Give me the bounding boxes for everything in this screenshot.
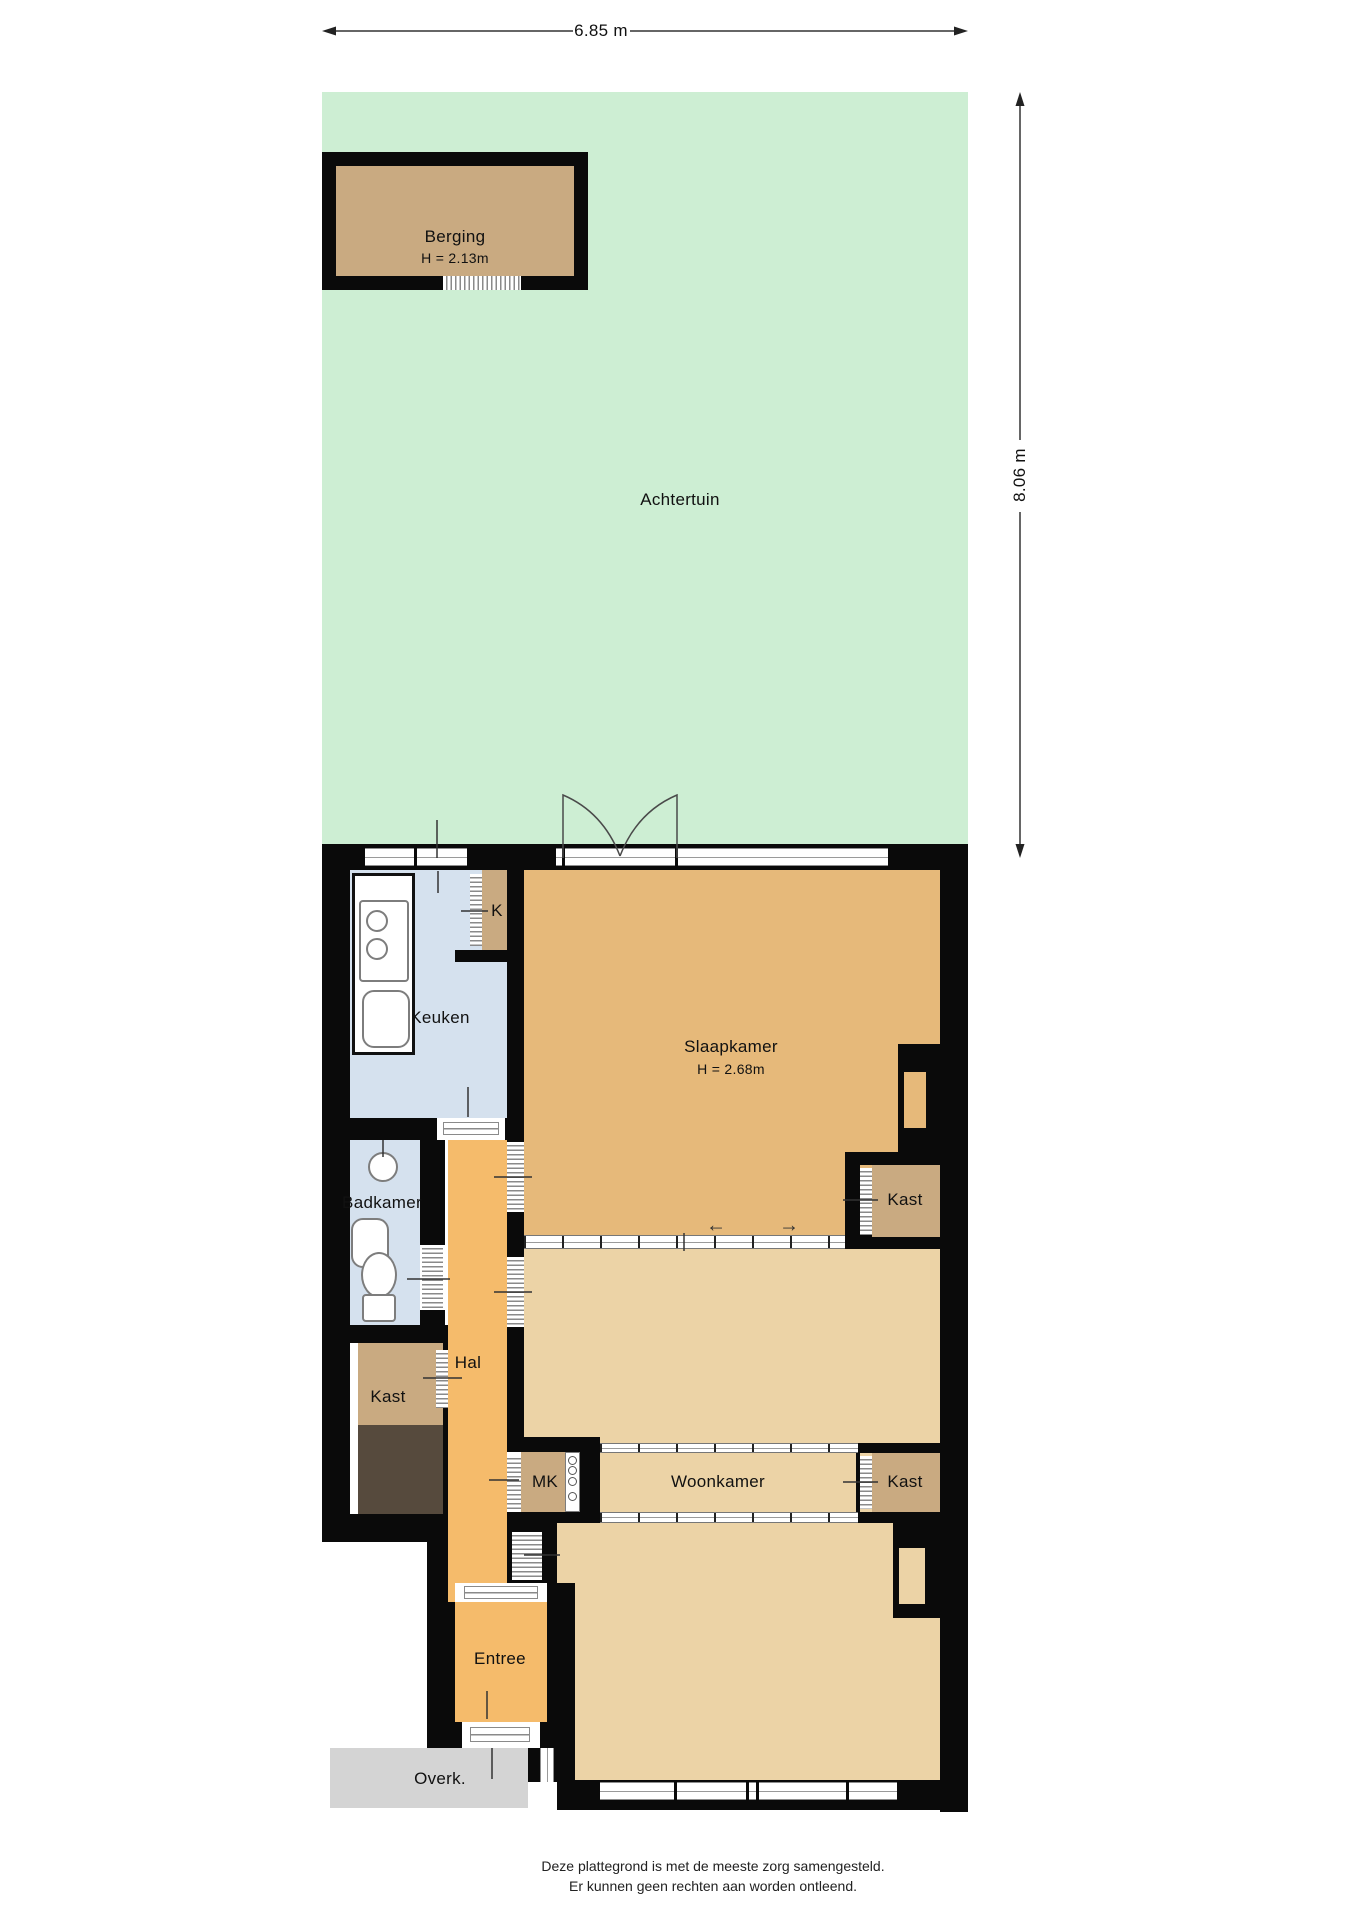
shower-icon (368, 1152, 398, 1182)
room-kast-left-floor (358, 1343, 443, 1425)
dimension-width-label: 6.85 m (568, 21, 634, 41)
badkamer-label: Badkamer (342, 1193, 422, 1213)
overkapping-label: Overk. (414, 1769, 466, 1789)
dimension-height-label: 8.06 m (1008, 444, 1032, 506)
kast-left-label: Kast (370, 1387, 405, 1407)
front-window-mullion (846, 1782, 849, 1800)
front-sidelight-window (540, 1748, 554, 1782)
entree-label: Entree (474, 1649, 526, 1669)
garden-door-jamb-left (562, 848, 565, 866)
bedroom-window (556, 848, 888, 866)
wall-strip (547, 1523, 557, 1583)
k-closet-bottom-wall (455, 950, 507, 962)
wall-band-top-right (858, 1443, 940, 1453)
stove-burner-icon (366, 910, 388, 932)
hal-entree-door-leaf (464, 1586, 538, 1599)
badkamer-door (422, 1245, 443, 1310)
woonkamer-sliding-door-bottom (600, 1512, 858, 1523)
front-window-mullion (746, 1782, 749, 1800)
footer-disclaimer-line1: Deze plattegrond is met de meeste zorg s… (541, 1858, 884, 1874)
wall-badkamer-right (420, 1140, 445, 1245)
front-window-mullion (756, 1782, 759, 1800)
kast-tr-door (860, 1168, 872, 1235)
front-door-leaf (470, 1727, 530, 1742)
woonkamer-sliding-door-top (600, 1443, 858, 1453)
front-door-jamb (455, 1722, 462, 1748)
chimney-niche-bedroom (904, 1072, 926, 1128)
wall-keuken-bottom (322, 1118, 437, 1140)
sidelight-jamb (554, 1748, 575, 1782)
kast-tr-top-wall (845, 1152, 940, 1165)
floor-plan-canvas: Achtertuin Berging H = 2.13m K Keuken Sl… (0, 0, 1358, 1920)
sliding-door-arrow-left: ← (706, 1215, 726, 1238)
chimney-niche-living (899, 1548, 925, 1604)
kitchen-window-mullion (414, 848, 417, 866)
stove-burner-icon (366, 938, 388, 960)
kast-tr-label: Kast (887, 1190, 922, 1210)
kast-br-label: Kast (887, 1472, 922, 1492)
front-door-jamb (540, 1722, 547, 1748)
toilet-bowl-icon (361, 1252, 397, 1298)
hal-slaapkamer-door (507, 1142, 524, 1212)
kast-br-door (860, 1456, 872, 1509)
front-door (462, 1722, 540, 1748)
hal-entree-door (455, 1583, 547, 1602)
dark-storage-floor (358, 1425, 443, 1514)
garden-label: Achtertuin (640, 490, 720, 510)
wall-badkamer-right-lower (420, 1310, 445, 1325)
k-closet-label: K (491, 901, 503, 921)
slaapkamer-label: Slaapkamer (684, 1037, 778, 1057)
hal-label: Hal (455, 1353, 481, 1373)
front-window-mullion (674, 1782, 677, 1800)
mk-label: MK (532, 1472, 558, 1492)
meter-icon (568, 1477, 577, 1486)
kitchen-sink-icon (362, 990, 410, 1048)
garden-door-jamb-right (675, 848, 678, 866)
hal-lower-room-door (512, 1532, 542, 1580)
sliding-door-arrow-right: → (779, 1215, 799, 1238)
berging-door (443, 276, 521, 290)
meter-icon (568, 1456, 577, 1465)
hal-woonkamer-door (507, 1257, 524, 1327)
keuken-hal-door-leaf (443, 1122, 499, 1135)
footer-disclaimer-line2: Er kunnen geen rechten aan worden ontlee… (569, 1878, 857, 1894)
wall-right (940, 844, 968, 1812)
mk-door (507, 1455, 521, 1509)
berging-height-label: H = 2.13m (421, 250, 489, 266)
kast-tr-left-wall (845, 1165, 860, 1245)
meter-icon (568, 1492, 577, 1501)
toilet-tank-icon (362, 1294, 396, 1322)
k-closet-door (470, 874, 482, 946)
wall-step (322, 1514, 455, 1542)
woonkamer-label: Woonkamer (671, 1472, 765, 1492)
slaapkamer-height-label: H = 2.68m (697, 1061, 765, 1077)
berging-label: Berging (425, 227, 486, 247)
room-woonkamer-lower-floor (557, 1523, 940, 1780)
wall-badkamer-bottom (322, 1325, 445, 1343)
meter-icon (568, 1466, 577, 1475)
wall-band-bottom-right (858, 1512, 940, 1523)
keuken-hal-door (437, 1118, 505, 1140)
wall-piece (505, 1118, 524, 1140)
keuken-label: Keuken (410, 1008, 469, 1028)
